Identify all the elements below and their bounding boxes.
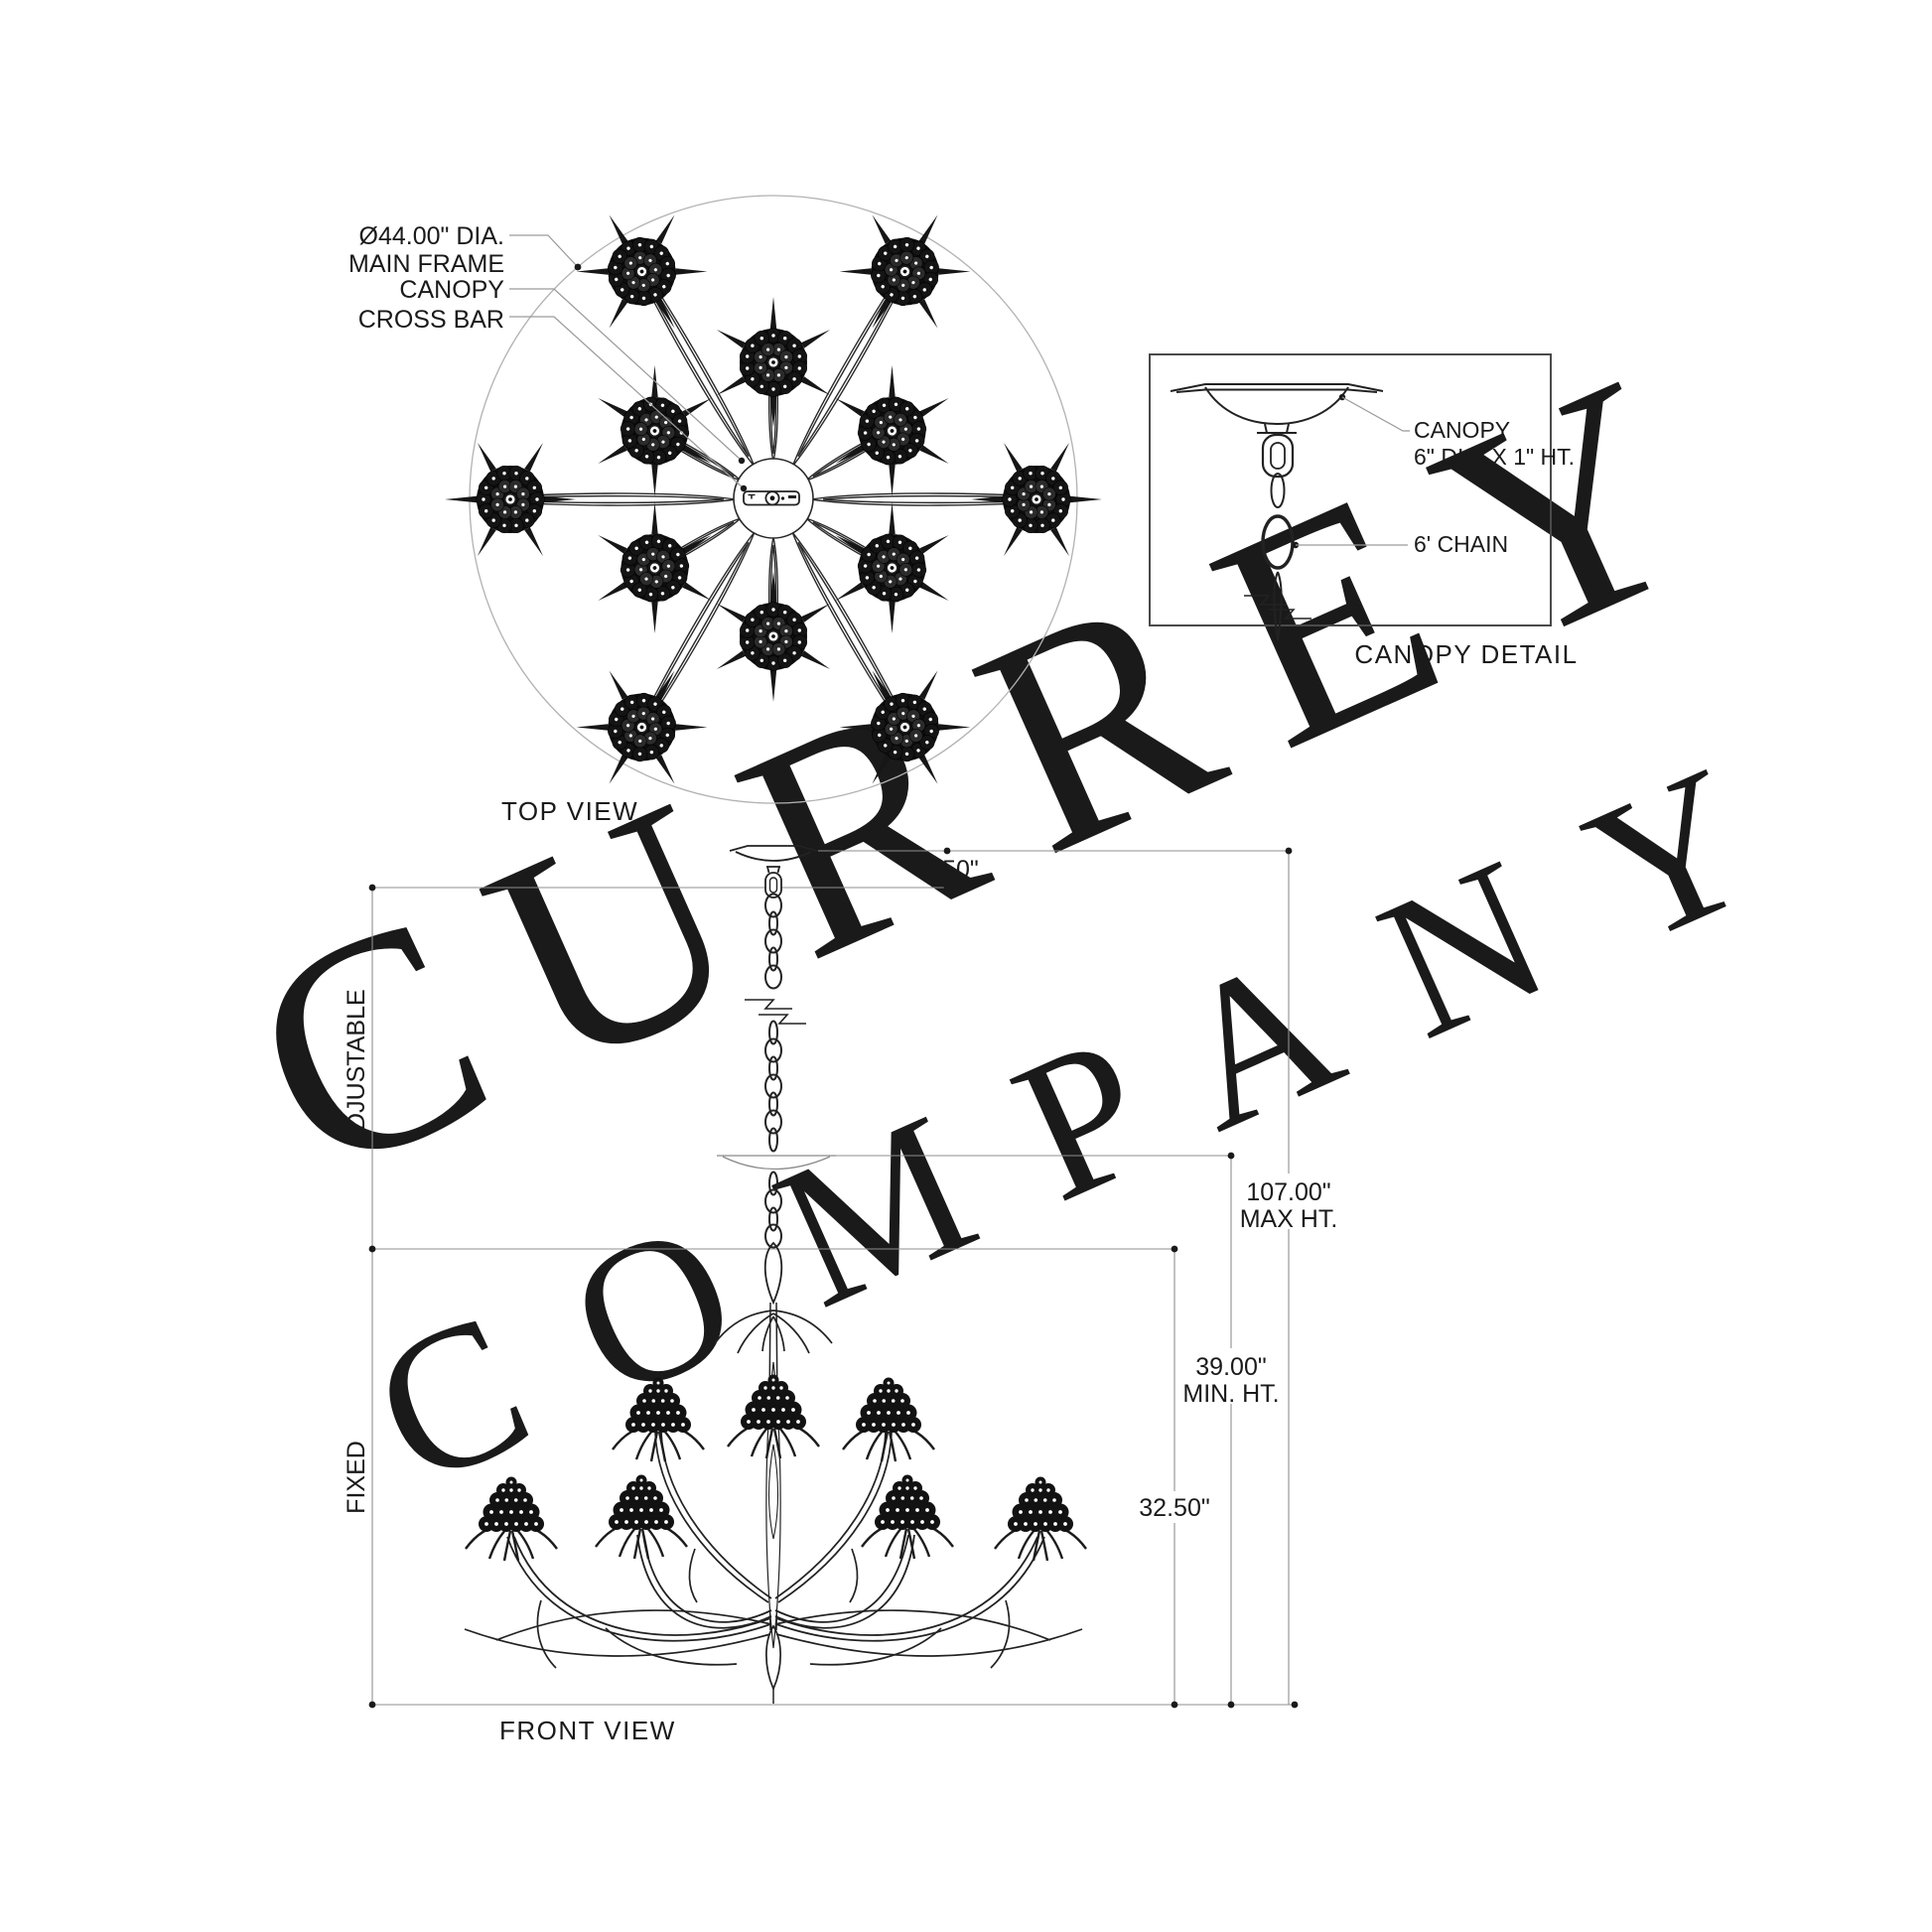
dim-canopy-height: 2.50" — [921, 856, 979, 884]
drawing-canvas: CURREY COMPANY — [0, 0, 1932, 1932]
canopy-detail-caption: CANOPY DETAIL — [1354, 639, 1578, 669]
dim-max-height-label: MAX HT. — [1240, 1205, 1338, 1233]
detail-label-canopy-size: 6" DIA. X 1" HT. — [1414, 444, 1575, 470]
front-view-caption: FRONT VIEW — [499, 1716, 676, 1745]
label-adjustable: ADJUSTABLE — [343, 989, 370, 1147]
label-cross-bar: CROSS BAR — [358, 306, 504, 334]
dim-min-height-label: MIN. HT. — [1182, 1380, 1279, 1408]
dim-min-height-value: 39.00" — [1195, 1353, 1266, 1381]
detail-label-canopy: CANOPY — [1414, 417, 1510, 443]
label-main-frame: MAIN FRAME — [348, 250, 504, 278]
spec-sheet-page: CURREY COMPANY — [0, 0, 1932, 1932]
detail-label-chain: 6' CHAIN — [1414, 531, 1508, 557]
canopy-hub — [734, 459, 813, 538]
label-fixed: FIXED — [343, 1441, 370, 1514]
top-view-caption: TOP VIEW — [501, 796, 638, 826]
label-canopy: CANOPY — [399, 276, 504, 304]
label-main-frame-dia: Ø44.00" DIA. — [359, 222, 504, 250]
dim-max-height-value: 107.00" — [1246, 1178, 1330, 1206]
dim-fixed-body: 32.50" — [1139, 1494, 1209, 1522]
cross-bar — [744, 491, 799, 505]
